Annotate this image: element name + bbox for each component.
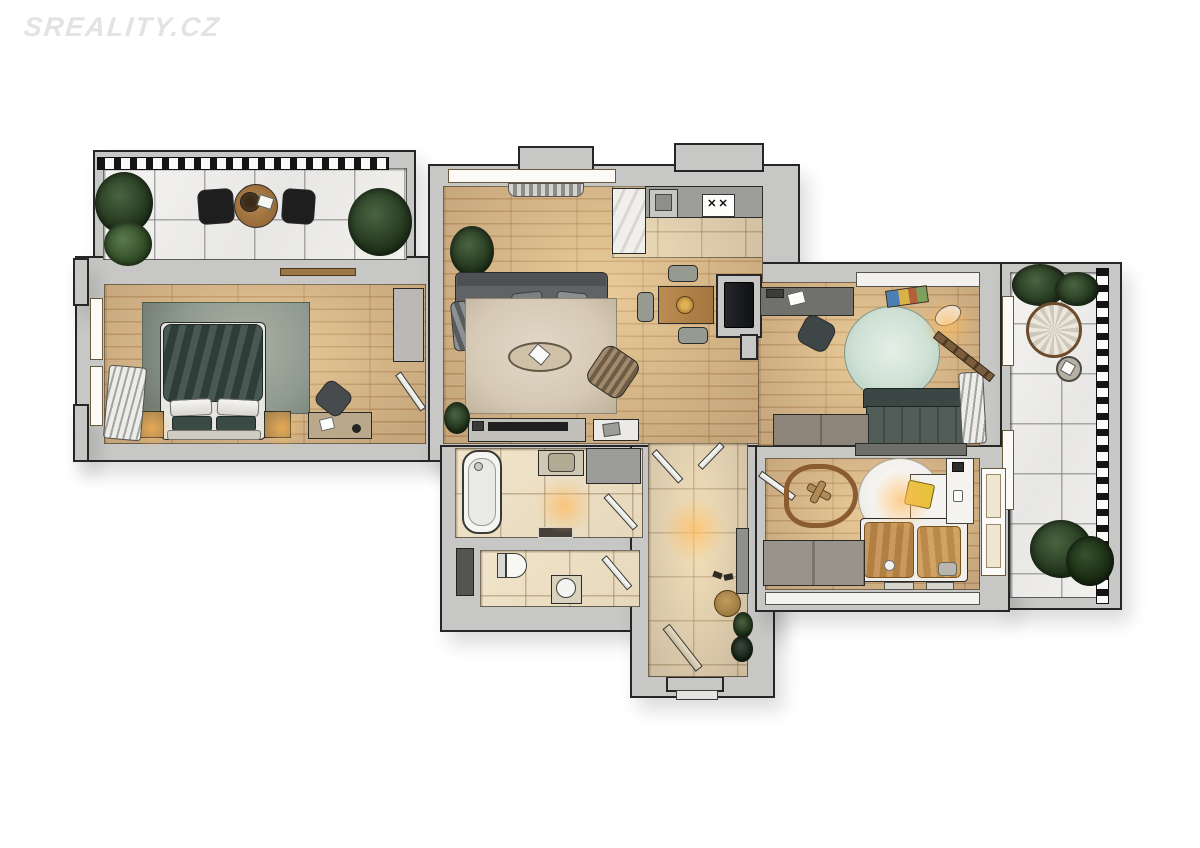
nightstand-right — [264, 411, 291, 438]
wall-pier-left-bottom — [73, 404, 89, 462]
kids-mat-left — [884, 582, 914, 590]
terrace-plant-left-lower — [104, 222, 152, 266]
console-photo-frame — [472, 421, 484, 431]
bed-foot-blanket — [167, 430, 261, 440]
balcony-plant-top-right — [1055, 272, 1099, 306]
bed-pillow-left — [170, 398, 213, 417]
fridge — [724, 282, 754, 328]
bedroom-window-upper — [90, 298, 103, 360]
kids-balcony-door-pane-upper — [986, 474, 1001, 518]
study-round-rug — [844, 306, 940, 400]
papasan-chair — [1026, 302, 1082, 358]
fridge-niche-leg — [740, 334, 758, 360]
kitchen-sink-basin — [655, 194, 672, 211]
kitchen-hob: ✕✕ — [702, 194, 735, 217]
kids-wardrobe — [763, 540, 865, 586]
side-table-magazine — [602, 422, 621, 437]
terrace-armchair-left — [197, 188, 235, 225]
kids-window-ledge — [765, 592, 980, 605]
dining-chair-left — [637, 292, 654, 322]
study-low-cabinet — [773, 414, 869, 446]
balcony-palm-bottom-right — [1066, 536, 1114, 586]
floor-plan-render: ✕✕ — [0, 0, 1200, 848]
bathroom-cabinet — [586, 448, 641, 484]
dining-food-bowl — [676, 296, 694, 314]
curtain — [508, 183, 584, 197]
blanket-stack — [103, 364, 147, 441]
toilet-cistern — [497, 553, 506, 578]
living-window-band — [448, 169, 616, 183]
kids-wall-cabinet-strip — [855, 443, 967, 456]
bathtub-drain — [474, 462, 483, 471]
study-desk-books — [766, 289, 784, 298]
hallway-plant-lower — [731, 636, 753, 662]
study-sofa-backrest — [863, 388, 967, 408]
dining-chair-top — [668, 265, 698, 282]
kids-bed-pillow — [938, 562, 957, 576]
console-plant — [444, 402, 470, 434]
kids-thermostat — [953, 490, 963, 502]
toilet-washbasin — [556, 578, 576, 598]
bedroom-desk — [308, 412, 372, 439]
tv — [488, 422, 568, 431]
kitchen-island-marble — [612, 188, 646, 254]
bedroom-wall-shelf — [280, 268, 356, 276]
dining-chair-bottom — [678, 327, 708, 344]
kids-chair — [904, 479, 936, 509]
kids-balcony-door-pane-lower — [986, 524, 1001, 568]
balcony-door-window-upper — [1002, 296, 1014, 366]
bed-duvet — [163, 324, 263, 402]
terrace-palm-right — [348, 188, 412, 256]
shaft-niche — [456, 548, 474, 596]
terrace-railing — [97, 157, 389, 170]
bedroom-wardrobe — [393, 288, 424, 362]
entrance-step — [676, 690, 718, 700]
bathroom-sink — [548, 453, 575, 472]
study-magazine-stack — [958, 371, 987, 444]
bath-mat — [538, 527, 573, 538]
wall-pier-left-top — [73, 258, 89, 306]
pillar-top-right — [674, 143, 764, 172]
kids-mat-right — [926, 582, 954, 590]
study-wall-shelf — [856, 272, 980, 287]
hallway-plant-upper — [733, 612, 753, 638]
bed-accent-pillow-right — [216, 416, 256, 431]
terrace-armchair-right — [281, 188, 316, 225]
sreality-watermark: SREALITY.CZ — [22, 12, 222, 43]
bed-pillow-right — [217, 398, 260, 417]
kids-wall-lamp — [952, 462, 964, 472]
kids-plush-toy — [884, 560, 895, 571]
hallway-mirror-panel — [736, 528, 749, 594]
bedroom-desk-lamp — [352, 424, 361, 433]
sofa-backrest — [457, 273, 606, 286]
bedroom-window-lower — [90, 366, 103, 426]
study-sofa-seat — [866, 406, 964, 446]
bed-accent-pillow-left — [172, 416, 212, 431]
living-plant — [450, 226, 494, 276]
